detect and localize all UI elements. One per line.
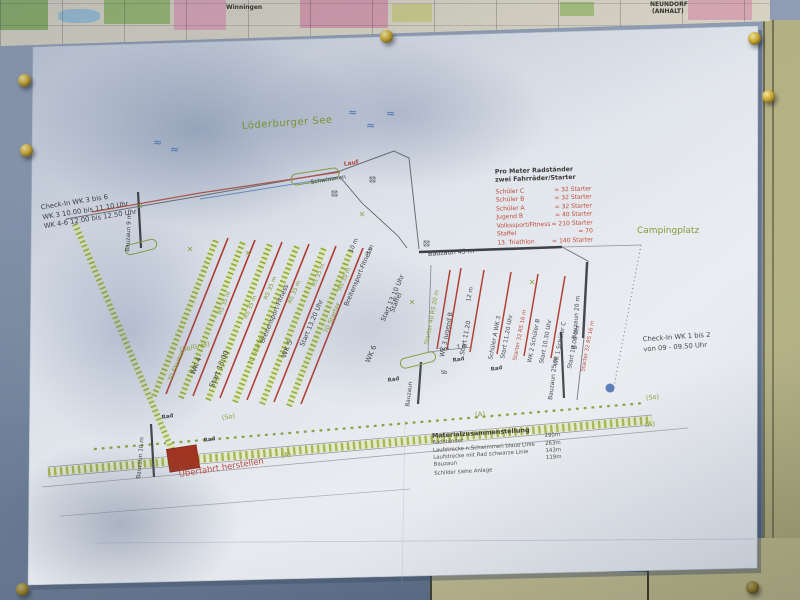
legend-count: = 32 Starter (554, 185, 592, 194)
pushpin-icon (18, 74, 31, 87)
legend-class: Schüler C (495, 187, 524, 195)
pushpin-icon (762, 90, 775, 103)
water-wave-icon: ≈ (386, 108, 395, 119)
blue-marker-icon (606, 384, 615, 393)
material-qty: 119m (546, 454, 562, 462)
zone-a-label: (A) (645, 421, 656, 429)
materials-list: Materialzusammenstellung Radständer290m … (432, 424, 563, 477)
legend-class: Schüler B (496, 196, 525, 204)
pushpin-icon (746, 581, 759, 594)
sb-marker-label: Sb (441, 371, 447, 376)
legend-count: = 40 Starter (555, 211, 593, 220)
legend-count: = 32 Starter (554, 194, 592, 203)
legend-class: Schüler A (496, 204, 525, 212)
pushpin-icon (748, 32, 761, 45)
water-wave-icon: ≈ (348, 107, 357, 118)
legend-count: = 70 (578, 228, 593, 236)
legend-class: Staffel (497, 230, 517, 238)
legend-count: = 32 Starter (555, 202, 593, 211)
legend-class: Jugend B (496, 213, 523, 221)
legend-count: = 140 Starter (552, 236, 593, 245)
pushpin-icon (20, 144, 33, 157)
photo-of-pinned-site-plan: Winningen NEUNDORF (ANHALT) (0, 0, 800, 600)
legend-class: 13. Triathlon (497, 238, 535, 247)
water-wave-icon: ≈ (153, 137, 162, 148)
water-wave-icon: ≈ (366, 120, 375, 131)
water-wave-icon: ≈ (170, 144, 179, 155)
zone-so-label: (So) (646, 394, 660, 402)
campsite-label: Campingplatz (637, 227, 699, 236)
pushpin-icon (380, 30, 393, 43)
pushpin-icon (16, 583, 29, 596)
rack-legend: Pro Meter Radständer zwei Fahrräder/Star… (495, 165, 594, 247)
legend-count: = 210 Starter (551, 219, 592, 228)
zone-a-label: (A) (475, 411, 486, 419)
sb-marker-label: Sb (571, 346, 577, 351)
